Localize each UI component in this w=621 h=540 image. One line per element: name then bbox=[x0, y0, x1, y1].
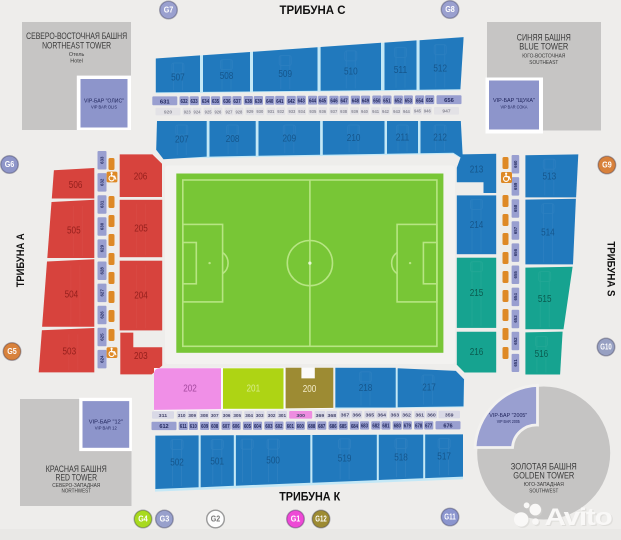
svg-text:656: 656 bbox=[513, 248, 518, 256]
svg-text:939: 939 bbox=[351, 109, 358, 114]
svg-text:502: 502 bbox=[170, 457, 184, 468]
svg-text:653: 653 bbox=[513, 315, 518, 323]
svg-text:682: 682 bbox=[372, 424, 379, 430]
svg-text:G8: G8 bbox=[445, 5, 455, 14]
svg-text:209: 209 bbox=[283, 134, 297, 145]
svg-text:VIP-БАР "ОЛИС": VIP-БАР "ОЛИС" bbox=[84, 99, 124, 105]
svg-text:SOUTHEAST: SOUTHEAST bbox=[529, 60, 559, 66]
svg-text:300: 300 bbox=[296, 413, 305, 418]
svg-text:601: 601 bbox=[287, 424, 294, 430]
svg-text:932: 932 bbox=[277, 109, 284, 114]
svg-text:634: 634 bbox=[202, 99, 209, 105]
svg-text:200: 200 bbox=[303, 384, 317, 395]
svg-text:518: 518 bbox=[394, 453, 408, 464]
svg-text:508: 508 bbox=[220, 71, 234, 82]
svg-text:218: 218 bbox=[359, 383, 373, 394]
svg-text:656: 656 bbox=[444, 98, 454, 104]
svg-text:929: 929 bbox=[247, 109, 254, 114]
svg-text:923: 923 bbox=[184, 109, 191, 114]
svg-text:515: 515 bbox=[538, 294, 552, 305]
svg-text:VIP BAR COKA: VIP BAR COKA bbox=[501, 104, 528, 109]
svg-text:359: 359 bbox=[445, 413, 454, 418]
svg-text:Hotel: Hotel bbox=[70, 58, 83, 64]
svg-text:512: 512 bbox=[433, 63, 447, 74]
svg-text:936: 936 bbox=[319, 109, 326, 114]
svg-text:ЮГО-ВОСТОЧНАЯ: ЮГО-ВОСТОЧНАЯ bbox=[522, 53, 565, 59]
svg-text:361: 361 bbox=[415, 413, 424, 418]
svg-text:938: 938 bbox=[340, 109, 347, 114]
svg-text:308: 308 bbox=[200, 413, 208, 418]
svg-text:215: 215 bbox=[470, 288, 484, 299]
svg-text:G6: G6 bbox=[5, 160, 15, 169]
svg-text:201: 201 bbox=[247, 383, 261, 394]
svg-text:688: 688 bbox=[308, 424, 315, 430]
svg-text:369: 369 bbox=[316, 413, 325, 418]
svg-text:686: 686 bbox=[330, 424, 337, 430]
svg-text:362: 362 bbox=[402, 413, 411, 418]
svg-text:631: 631 bbox=[160, 99, 170, 105]
svg-text:920: 920 bbox=[164, 110, 173, 115]
svg-text:VIP BAR OLIS: VIP BAR OLIS bbox=[91, 105, 117, 110]
svg-text:G5: G5 bbox=[7, 347, 17, 356]
svg-text:СЕВЕРО-ВОСТОЧНАЯ БАШНЯ: СЕВЕРО-ВОСТОЧНАЯ БАШНЯ bbox=[26, 31, 127, 41]
svg-text:511: 511 bbox=[394, 65, 408, 76]
svg-text:VIP-БАР "ЩУКА": VIP-БАР "ЩУКА" bbox=[493, 98, 535, 104]
svg-text:632: 632 bbox=[181, 99, 188, 105]
svg-text:931: 931 bbox=[267, 109, 274, 114]
svg-text:203: 203 bbox=[134, 351, 148, 362]
svg-text:ТРИБУНА С: ТРИБУНА С bbox=[280, 5, 346, 17]
svg-text:628: 628 bbox=[100, 267, 105, 275]
svg-text:RED TOWER: RED TOWER bbox=[56, 472, 98, 482]
svg-text:655: 655 bbox=[513, 271, 518, 279]
svg-text:944: 944 bbox=[403, 109, 410, 114]
svg-text:924: 924 bbox=[194, 109, 201, 114]
svg-text:654: 654 bbox=[513, 293, 518, 301]
svg-text:658: 658 bbox=[513, 204, 518, 212]
svg-text:659: 659 bbox=[513, 182, 518, 190]
svg-text:633: 633 bbox=[100, 156, 105, 164]
svg-text:927: 927 bbox=[226, 109, 233, 114]
svg-text:612: 612 bbox=[159, 424, 169, 430]
svg-text:947: 947 bbox=[442, 109, 451, 114]
svg-text:635: 635 bbox=[212, 99, 219, 105]
svg-text:509: 509 bbox=[278, 69, 292, 80]
svg-text:685: 685 bbox=[340, 424, 347, 430]
svg-text:364: 364 bbox=[377, 413, 386, 418]
svg-text:626: 626 bbox=[100, 311, 105, 319]
svg-text:610: 610 bbox=[190, 424, 197, 430]
svg-text:660: 660 bbox=[513, 160, 518, 168]
svg-text:206: 206 bbox=[134, 172, 148, 183]
svg-text:BLUE TOWER: BLUE TOWER bbox=[519, 42, 568, 52]
svg-text:301: 301 bbox=[278, 413, 286, 418]
svg-text:214: 214 bbox=[470, 220, 484, 231]
svg-text:637: 637 bbox=[233, 99, 240, 105]
svg-text:650: 650 bbox=[373, 98, 380, 104]
svg-text:941: 941 bbox=[372, 109, 379, 114]
svg-text:632: 632 bbox=[100, 178, 105, 186]
svg-text:631: 631 bbox=[100, 200, 105, 208]
svg-text:505: 505 bbox=[67, 225, 81, 236]
svg-text:517: 517 bbox=[437, 452, 451, 463]
svg-text:302: 302 bbox=[268, 413, 276, 418]
svg-text:602: 602 bbox=[275, 424, 282, 430]
svg-text:G2: G2 bbox=[211, 515, 221, 524]
svg-text:VIP-БАР "12": VIP-БАР "12" bbox=[89, 420, 123, 426]
svg-text:627: 627 bbox=[100, 289, 105, 297]
svg-text:ТРИБУНА А: ТРИБУНА А bbox=[15, 233, 27, 287]
svg-text:212: 212 bbox=[433, 132, 447, 143]
svg-text:937: 937 bbox=[330, 109, 337, 114]
svg-text:687: 687 bbox=[318, 424, 325, 430]
svg-text:657: 657 bbox=[513, 226, 518, 234]
svg-text:208: 208 bbox=[226, 134, 240, 145]
svg-text:Отель: Отель bbox=[69, 52, 85, 58]
svg-text:629: 629 bbox=[100, 244, 105, 252]
svg-text:213: 213 bbox=[470, 165, 484, 176]
svg-text:G1: G1 bbox=[291, 515, 301, 524]
svg-text:684: 684 bbox=[351, 424, 358, 430]
svg-text:611: 611 bbox=[180, 424, 187, 430]
svg-text:683: 683 bbox=[361, 424, 368, 430]
svg-text:207: 207 bbox=[175, 134, 189, 145]
svg-text:645: 645 bbox=[319, 99, 326, 105]
svg-text:G10: G10 bbox=[600, 343, 612, 352]
svg-text:607: 607 bbox=[223, 424, 230, 430]
svg-text:603: 603 bbox=[265, 424, 272, 430]
svg-text:ТРИБУНА К: ТРИБУНА К bbox=[279, 492, 341, 504]
svg-text:368: 368 bbox=[328, 413, 337, 418]
svg-text:211: 211 bbox=[396, 133, 410, 144]
svg-text:G4: G4 bbox=[138, 515, 148, 524]
svg-text:506: 506 bbox=[69, 180, 83, 191]
svg-text:VIP BAR 12: VIP BAR 12 bbox=[95, 426, 118, 431]
svg-text:GOLDEN TOWER: GOLDEN TOWER bbox=[513, 471, 574, 481]
svg-text:216: 216 bbox=[470, 347, 484, 358]
svg-text:306: 306 bbox=[223, 413, 231, 418]
svg-text:679: 679 bbox=[404, 424, 411, 430]
svg-text:503: 503 bbox=[63, 347, 77, 358]
svg-text:639: 639 bbox=[255, 99, 262, 105]
svg-text:933: 933 bbox=[288, 109, 295, 114]
svg-text:654: 654 bbox=[416, 98, 423, 104]
svg-text:624: 624 bbox=[100, 355, 105, 363]
svg-text:507: 507 bbox=[171, 73, 185, 84]
svg-text:G9: G9 bbox=[602, 161, 612, 170]
svg-text:608: 608 bbox=[211, 424, 218, 430]
svg-text:649: 649 bbox=[362, 99, 369, 105]
svg-text:648: 648 bbox=[352, 99, 359, 105]
svg-text:504: 504 bbox=[65, 290, 79, 301]
svg-text:ТРИБУНА S: ТРИБУНА S bbox=[605, 241, 617, 296]
svg-text:625: 625 bbox=[100, 333, 105, 341]
svg-text:653: 653 bbox=[405, 98, 412, 104]
svg-text:926: 926 bbox=[214, 109, 221, 114]
svg-text:930: 930 bbox=[256, 109, 263, 114]
svg-text:363: 363 bbox=[391, 413, 400, 418]
svg-text:928: 928 bbox=[235, 109, 242, 114]
svg-text:NORTHWEST: NORTHWEST bbox=[62, 489, 92, 495]
svg-text:SOUTHWEST: SOUTHWEST bbox=[529, 488, 559, 494]
svg-text:606: 606 bbox=[233, 424, 240, 430]
svg-text:651: 651 bbox=[513, 359, 518, 367]
svg-text:ЮГО-ЗАПАДНАЯ: ЮГО-ЗАПАДНАЯ bbox=[524, 482, 564, 488]
svg-text:604: 604 bbox=[254, 424, 261, 430]
svg-text:501: 501 bbox=[210, 457, 224, 468]
svg-text:935: 935 bbox=[309, 109, 316, 114]
svg-text:946: 946 bbox=[424, 109, 431, 114]
svg-text:513: 513 bbox=[543, 172, 557, 183]
svg-text:678: 678 bbox=[415, 424, 422, 430]
svg-text:204: 204 bbox=[134, 291, 148, 302]
svg-text:641: 641 bbox=[276, 99, 283, 105]
svg-text:519: 519 bbox=[338, 454, 352, 465]
svg-text:609: 609 bbox=[201, 424, 208, 430]
svg-text:303: 303 bbox=[256, 413, 264, 418]
svg-text:305: 305 bbox=[233, 413, 241, 418]
svg-text:630: 630 bbox=[100, 222, 105, 230]
svg-text:925: 925 bbox=[205, 109, 212, 114]
svg-text:366: 366 bbox=[352, 413, 361, 418]
svg-text:677: 677 bbox=[425, 424, 432, 430]
svg-text:514: 514 bbox=[541, 227, 555, 238]
svg-text:633: 633 bbox=[191, 99, 198, 105]
svg-text:655: 655 bbox=[426, 98, 433, 104]
svg-text:636: 636 bbox=[223, 99, 230, 105]
svg-text:500: 500 bbox=[266, 455, 280, 466]
svg-text:G12: G12 bbox=[315, 515, 327, 524]
svg-text:605: 605 bbox=[244, 424, 251, 430]
svg-text:367: 367 bbox=[341, 413, 350, 418]
svg-text:365: 365 bbox=[366, 413, 375, 418]
svg-text:646: 646 bbox=[330, 99, 337, 105]
svg-text:210: 210 bbox=[347, 133, 361, 144]
svg-text:644: 644 bbox=[309, 99, 316, 105]
svg-text:307: 307 bbox=[211, 413, 219, 418]
svg-text:510: 510 bbox=[344, 67, 358, 78]
svg-text:640: 640 bbox=[266, 99, 273, 105]
svg-text:642: 642 bbox=[288, 99, 295, 105]
svg-text:647: 647 bbox=[341, 99, 348, 105]
svg-text:643: 643 bbox=[298, 99, 305, 105]
svg-text:360: 360 bbox=[427, 413, 436, 418]
svg-text:202: 202 bbox=[183, 384, 197, 395]
svg-text:940: 940 bbox=[361, 109, 368, 114]
svg-text:304: 304 bbox=[245, 413, 253, 418]
svg-text:638: 638 bbox=[245, 99, 252, 105]
svg-text:Avito: Avito bbox=[545, 504, 613, 531]
svg-text:652: 652 bbox=[395, 98, 402, 104]
svg-text:311: 311 bbox=[159, 413, 168, 418]
svg-text:309: 309 bbox=[188, 413, 196, 418]
svg-text:943: 943 bbox=[393, 109, 400, 114]
svg-text:676: 676 bbox=[443, 424, 453, 430]
svg-text:G3: G3 bbox=[160, 515, 170, 524]
svg-text:217: 217 bbox=[422, 383, 436, 394]
svg-text:310: 310 bbox=[178, 413, 186, 418]
svg-text:NORTHEAST TOWER: NORTHEAST TOWER bbox=[42, 41, 111, 51]
svg-text:681: 681 bbox=[382, 424, 389, 430]
svg-text:516: 516 bbox=[535, 349, 549, 360]
svg-text:945: 945 bbox=[414, 109, 421, 114]
svg-text:942: 942 bbox=[382, 109, 389, 114]
svg-text:600: 600 bbox=[297, 424, 304, 430]
svg-text:680: 680 bbox=[394, 424, 401, 430]
svg-text:G7: G7 bbox=[164, 6, 174, 15]
svg-text:934: 934 bbox=[298, 109, 305, 114]
svg-text:205: 205 bbox=[134, 224, 148, 235]
svg-text:651: 651 bbox=[383, 98, 390, 104]
svg-text:G11: G11 bbox=[444, 513, 456, 522]
svg-text:VIP BAR 2005: VIP BAR 2005 bbox=[497, 419, 520, 424]
svg-text:652: 652 bbox=[513, 337, 518, 345]
